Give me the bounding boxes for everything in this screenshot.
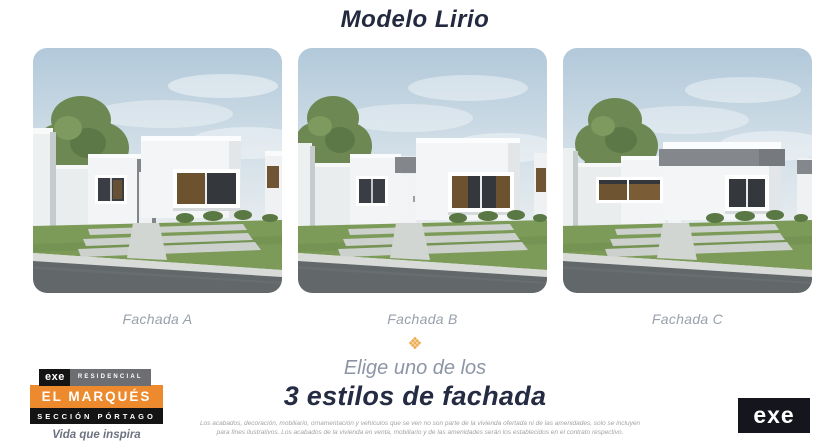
- flyer-page: Modelo Lirio: [0, 0, 830, 446]
- legal-disclaimer: Los acabados, decoración, mobiliario, or…: [168, 419, 672, 437]
- facade-card-a: Fachada A: [33, 48, 282, 327]
- disclaimer-line-1: Los acabados, decoración, mobiliario, or…: [168, 419, 672, 428]
- brand-diamond-icon: [408, 336, 422, 355]
- house-render-b-illustration: [298, 48, 547, 293]
- brand-name: EL MARQUÉS: [30, 385, 163, 408]
- brand-logo-top-row: exe RESIDENCIAL: [39, 369, 163, 386]
- model-title: Modelo Lirio: [0, 6, 830, 34]
- exe-logo-right: exe: [738, 398, 810, 433]
- exe-wordmark: exe: [39, 369, 70, 386]
- residencial-label: RESIDENCIAL: [70, 369, 151, 386]
- facade-b-label: Fachada B: [298, 311, 547, 327]
- facade-b-render: [298, 48, 547, 293]
- brand-section: SECCIÓN PÓRTAGO: [30, 408, 163, 424]
- house-render-c-illustration: [563, 48, 812, 293]
- facade-c-render: [563, 48, 812, 293]
- house-render-a-illustration: [33, 48, 282, 293]
- facade-card-b: Fachada B: [298, 48, 547, 327]
- facade-card-c: Fachada C: [563, 48, 812, 327]
- facade-a-label: Fachada A: [33, 311, 282, 327]
- facade-a-render: [33, 48, 282, 293]
- brand-tagline: Vida que inspira: [30, 429, 163, 441]
- disclaimer-line-2: para fines ilustrativos. Los acabados de…: [168, 428, 672, 437]
- facade-cards-row: Fachada A: [33, 48, 812, 327]
- brand-logo: exe RESIDENCIAL EL MARQUÉS SECCIÓN PÓRTA…: [30, 369, 163, 441]
- facade-c-label: Fachada C: [563, 311, 812, 327]
